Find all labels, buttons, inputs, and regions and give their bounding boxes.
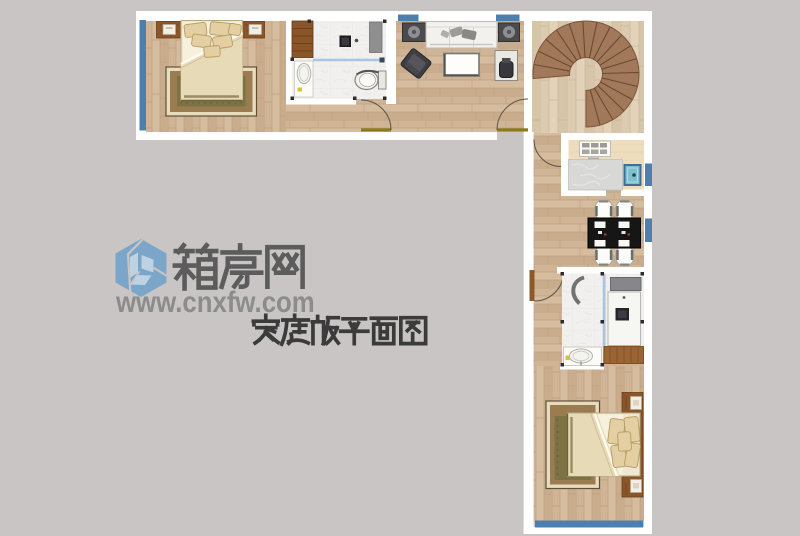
svg-text:www.cnxfw.com: www.cnxfw.com: [115, 285, 315, 318]
